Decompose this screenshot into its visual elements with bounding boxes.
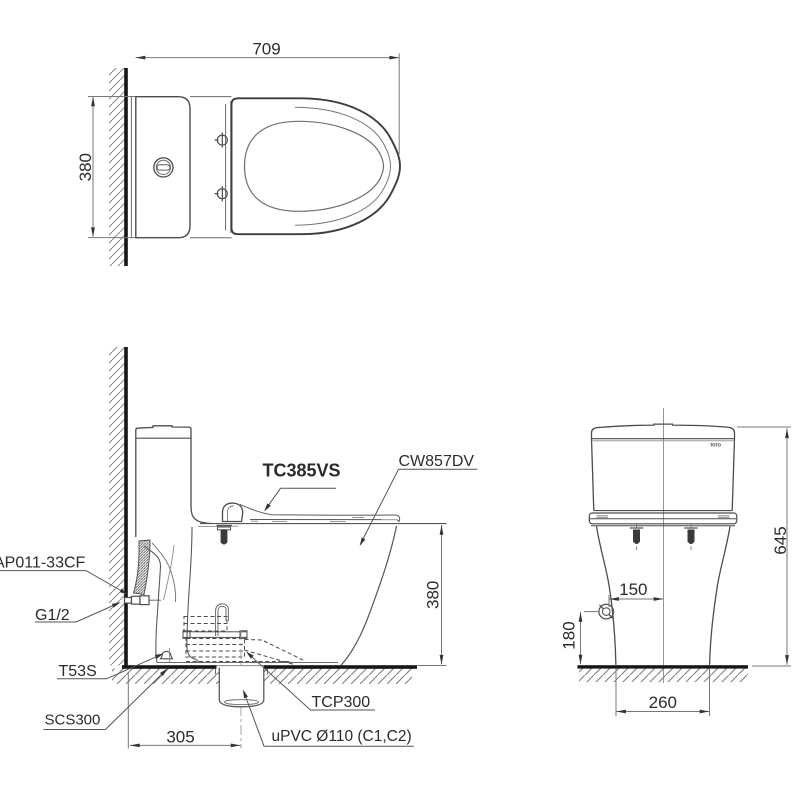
svg-text:SCS300: SCS300 (45, 712, 101, 729)
svg-text:260: 260 (649, 693, 677, 712)
svg-text:uPVC Ø110 (C1,C2): uPVC Ø110 (C1,C2) (272, 728, 412, 745)
svg-text:380: 380 (76, 153, 95, 181)
svg-text:T53S: T53S (59, 663, 97, 680)
svg-text:380: 380 (424, 581, 443, 609)
svg-text:TCP300: TCP300 (312, 694, 371, 711)
svg-text:AP011-33CF: AP011-33CF (0, 554, 86, 571)
svg-text:150: 150 (619, 580, 647, 599)
svg-text:180: 180 (559, 621, 578, 649)
svg-text:709: 709 (252, 40, 280, 59)
svg-text:CW857DV: CW857DV (399, 453, 475, 470)
svg-text:TC385VS: TC385VS (263, 461, 341, 481)
svg-text:305: 305 (166, 727, 194, 746)
svg-text:TOTO: TOTO (710, 442, 722, 447)
svg-text:G1/2: G1/2 (35, 607, 70, 624)
svg-text:645: 645 (771, 526, 790, 554)
